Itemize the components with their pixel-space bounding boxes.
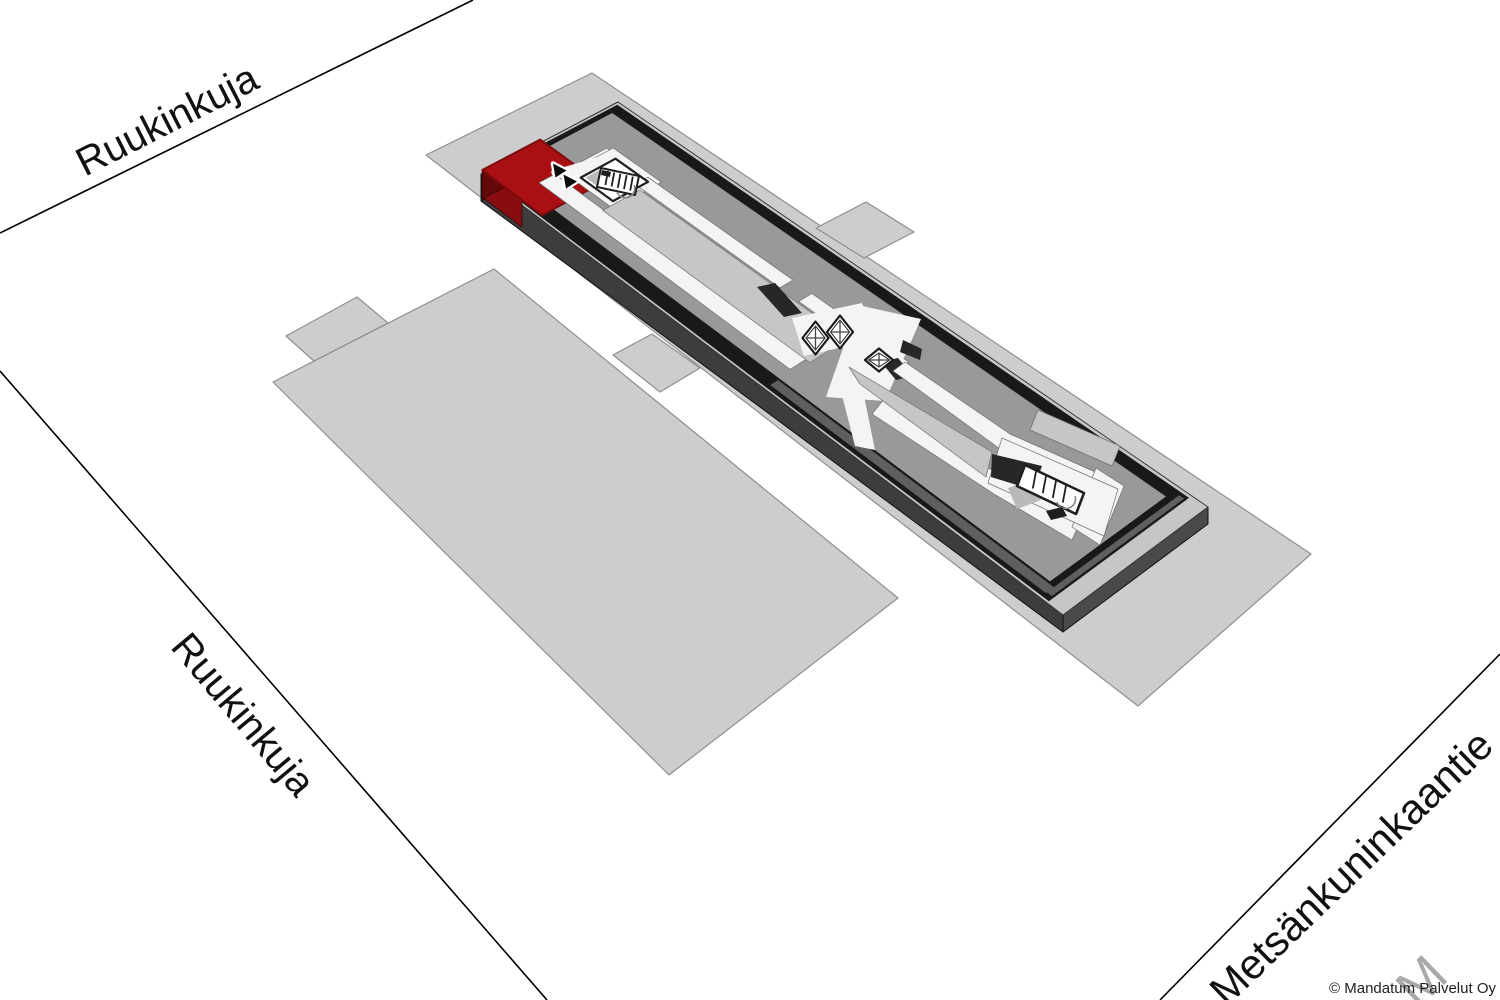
svg-text:Metsänkuninkaantie: Metsänkuninkaantie (1200, 721, 1500, 1000)
svg-text:© Mandatum Palvelut Oy: © Mandatum Palvelut Oy (1329, 980, 1496, 997)
svg-text:Ruukinkuja: Ruukinkuja (69, 56, 266, 185)
